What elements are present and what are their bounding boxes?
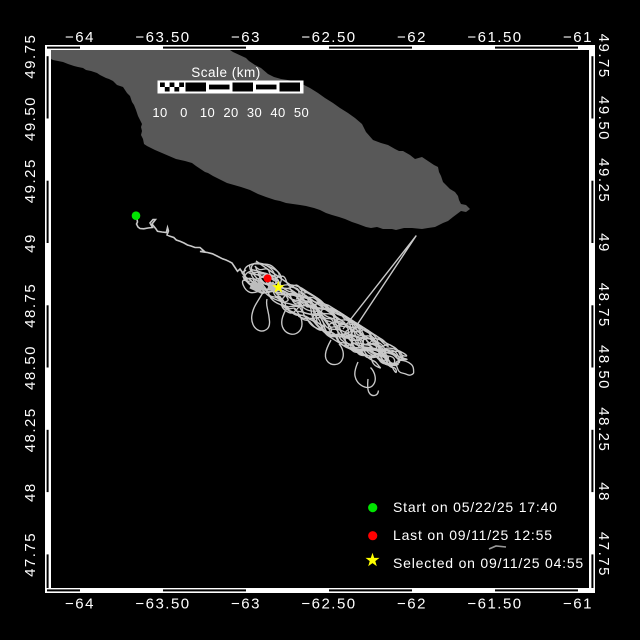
svg-text:49.25: 49.25	[595, 158, 612, 203]
svg-text:20: 20	[223, 105, 238, 120]
svg-text:−64: −64	[65, 29, 95, 46]
svg-text:49.75: 49.75	[595, 34, 612, 79]
svg-text:48.25: 48.25	[595, 407, 612, 452]
svg-text:−64: −64	[65, 596, 95, 613]
svg-text:Selected on 09/11/25 04:55: Selected on 09/11/25 04:55	[393, 555, 584, 571]
svg-text:Scale (km): Scale (km)	[191, 65, 261, 80]
svg-text:−62: −62	[397, 29, 427, 46]
svg-text:−63.50: −63.50	[135, 29, 190, 46]
svg-text:48.50: 48.50	[22, 345, 39, 390]
svg-text:−61.50: −61.50	[467, 596, 522, 613]
svg-text:49: 49	[22, 233, 39, 253]
svg-text:49.25: 49.25	[22, 158, 39, 203]
svg-text:49.50: 49.50	[22, 96, 39, 141]
svg-text:47.75: 47.75	[595, 532, 612, 577]
svg-text:0: 0	[180, 105, 188, 120]
svg-text:49: 49	[595, 233, 612, 253]
svg-text:48: 48	[595, 482, 612, 502]
svg-text:40: 40	[270, 105, 285, 120]
svg-text:Last on 09/11/25 12:55: Last on 09/11/25 12:55	[393, 527, 553, 543]
svg-text:30: 30	[247, 105, 262, 120]
svg-text:−63: −63	[231, 596, 261, 613]
svg-text:10: 10	[152, 105, 167, 120]
svg-text:48: 48	[22, 482, 39, 502]
svg-text:49.50: 49.50	[595, 96, 612, 141]
svg-text:Start on 05/22/25 17:40: Start on 05/22/25 17:40	[393, 499, 558, 515]
svg-text:10: 10	[200, 105, 215, 120]
svg-text:−63: −63	[231, 29, 261, 46]
svg-text:49.75: 49.75	[22, 34, 39, 79]
svg-text:48.75: 48.75	[595, 283, 612, 328]
svg-text:−63.50: −63.50	[135, 596, 190, 613]
svg-text:−62: −62	[397, 596, 427, 613]
svg-text:48.75: 48.75	[22, 283, 39, 328]
svg-text:−61: −61	[563, 29, 593, 46]
svg-text:48.25: 48.25	[22, 407, 39, 452]
svg-text:−62.50: −62.50	[301, 29, 356, 46]
svg-text:50: 50	[294, 105, 309, 120]
svg-text:48.50: 48.50	[595, 345, 612, 390]
svg-text:−62.50: −62.50	[301, 596, 356, 613]
svg-text:−61.50: −61.50	[467, 29, 522, 46]
svg-text:47.75: 47.75	[22, 532, 39, 577]
svg-text:−61: −61	[563, 596, 593, 613]
